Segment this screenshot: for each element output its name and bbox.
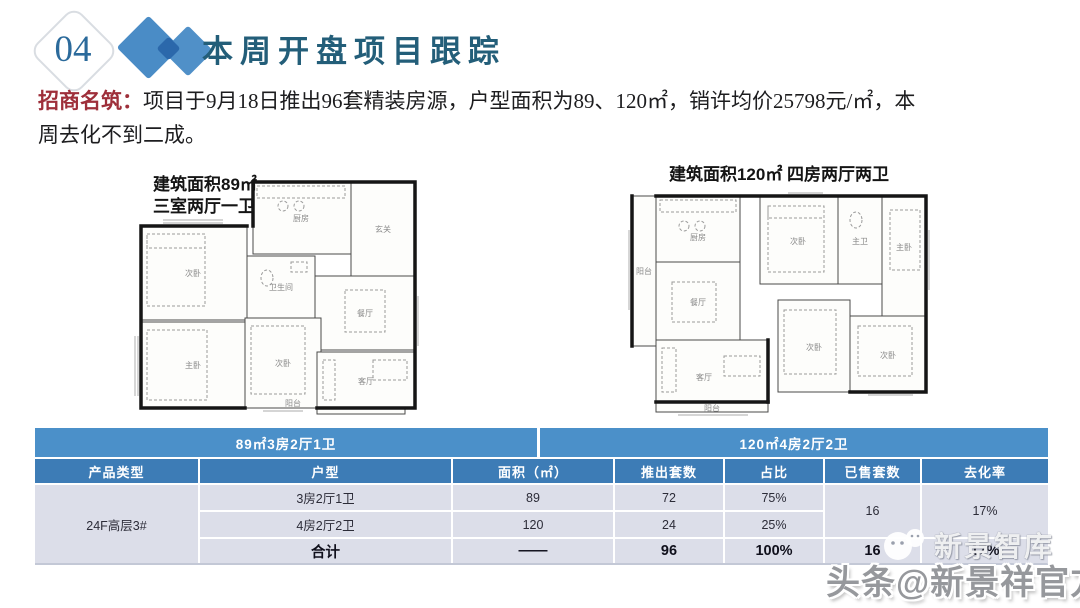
span-header-row: 89㎡3房2厅1卫 120㎡4房2厅2卫 bbox=[35, 428, 1048, 457]
col-header-share: 占比 bbox=[725, 459, 823, 483]
floorplan-120: 建筑面积120㎡ 四房两厅两卫 bbox=[628, 164, 930, 416]
room-label: 主卧 bbox=[896, 242, 912, 252]
room-label: 主卫 bbox=[852, 236, 868, 246]
account-watermark: 头条@新景祥官方 bbox=[826, 555, 1080, 604]
slide: 04 本周开盘项目跟踪 招商名筑：项目于9月18日推出96套精装房源，户型面积为… bbox=[0, 0, 1080, 608]
cell-units-2: 24 bbox=[615, 512, 723, 537]
cell-share-1: 75% bbox=[725, 485, 823, 510]
room-label: 主卧 bbox=[185, 360, 201, 370]
room-label: 阳台 bbox=[704, 403, 720, 413]
col-header-rate: 去化率 bbox=[922, 459, 1048, 483]
span-header-120: 120㎡4房2厅2卫 bbox=[540, 428, 1048, 457]
room-label: 阳台 bbox=[636, 266, 652, 276]
room-label: 次卧 bbox=[790, 236, 806, 246]
room-label: 餐厅 bbox=[690, 298, 706, 307]
room-label: 厨房 bbox=[690, 232, 706, 242]
col-header-units: 推出套数 bbox=[615, 459, 723, 483]
floorplan-89-title: 建筑面积89㎡ 三室两厅一卫 bbox=[153, 174, 257, 218]
room-label: 次卧 bbox=[185, 268, 201, 278]
cell-product-type: 24F高层3# bbox=[35, 485, 198, 563]
cell-area-2: 120 bbox=[453, 512, 613, 537]
span-header-89: 89㎡3房2厅1卫 bbox=[35, 428, 537, 457]
room-label: 次卧 bbox=[880, 350, 896, 360]
col-header-sold: 已售套数 bbox=[825, 459, 920, 483]
project-name: 招商名筑： bbox=[38, 89, 143, 113]
col-header-area: 面积（㎡） bbox=[453, 459, 613, 483]
room-label: 次卧 bbox=[806, 342, 822, 352]
cell-total-label: 合计 bbox=[200, 539, 451, 563]
floorplan-120-title: 建筑面积120㎡ 四房两厅两卫 bbox=[628, 164, 930, 186]
floorplan-120-drawing: 阳台 厨房 餐厅 客厅 阳台 次卧 主卫 主卧 次卧 次卧 bbox=[628, 190, 930, 416]
intro-line-2: 周去化不到二成。 bbox=[38, 118, 1053, 152]
cell-area-1: 89 bbox=[453, 485, 613, 510]
intro-text-1: 项目于9月18日推出96套精装房源，户型面积为89、120㎡，销许均价25798… bbox=[143, 89, 915, 113]
intro-paragraph: 招商名筑：项目于9月18日推出96套精装房源，户型面积为89、120㎡，销许均价… bbox=[38, 84, 1053, 152]
room-label: 阳台 bbox=[285, 398, 301, 408]
room-label: 客厅 bbox=[696, 372, 712, 382]
page-title: 本周开盘项目跟踪 bbox=[202, 26, 506, 71]
cell-total-units: 96 bbox=[615, 539, 723, 563]
cell-total-share: 100% bbox=[725, 539, 823, 563]
intro-line-1: 招商名筑：项目于9月18日推出96套精装房源，户型面积为89、120㎡，销许均价… bbox=[38, 84, 1053, 118]
cell-huxing-2: 4房2厅2卫 bbox=[200, 512, 451, 537]
floorplan-89: 建筑面积89㎡ 三室两厅一卫 bbox=[133, 166, 420, 416]
room-label: 客厅 bbox=[358, 376, 374, 386]
room-label: 卫生间 bbox=[269, 282, 293, 292]
floorplan-89-area: 建筑面积89㎡ bbox=[153, 174, 257, 196]
room-label: 次卧 bbox=[275, 358, 291, 368]
col-header-huxing: 户型 bbox=[200, 459, 451, 483]
room-label: 餐厅 bbox=[357, 309, 373, 318]
section-number: 04 bbox=[40, 16, 106, 82]
cell-huxing-1: 3房2厅1卫 bbox=[200, 485, 451, 510]
floorplan-89-layout: 三室两厅一卫 bbox=[153, 196, 257, 218]
cell-total-area: —— bbox=[453, 539, 613, 563]
room-label: 玄关 bbox=[375, 224, 391, 234]
cell-units-1: 72 bbox=[615, 485, 723, 510]
cell-share-2: 25% bbox=[725, 512, 823, 537]
col-header-product: 产品类型 bbox=[35, 459, 198, 483]
room-label: 厨房 bbox=[293, 213, 309, 223]
